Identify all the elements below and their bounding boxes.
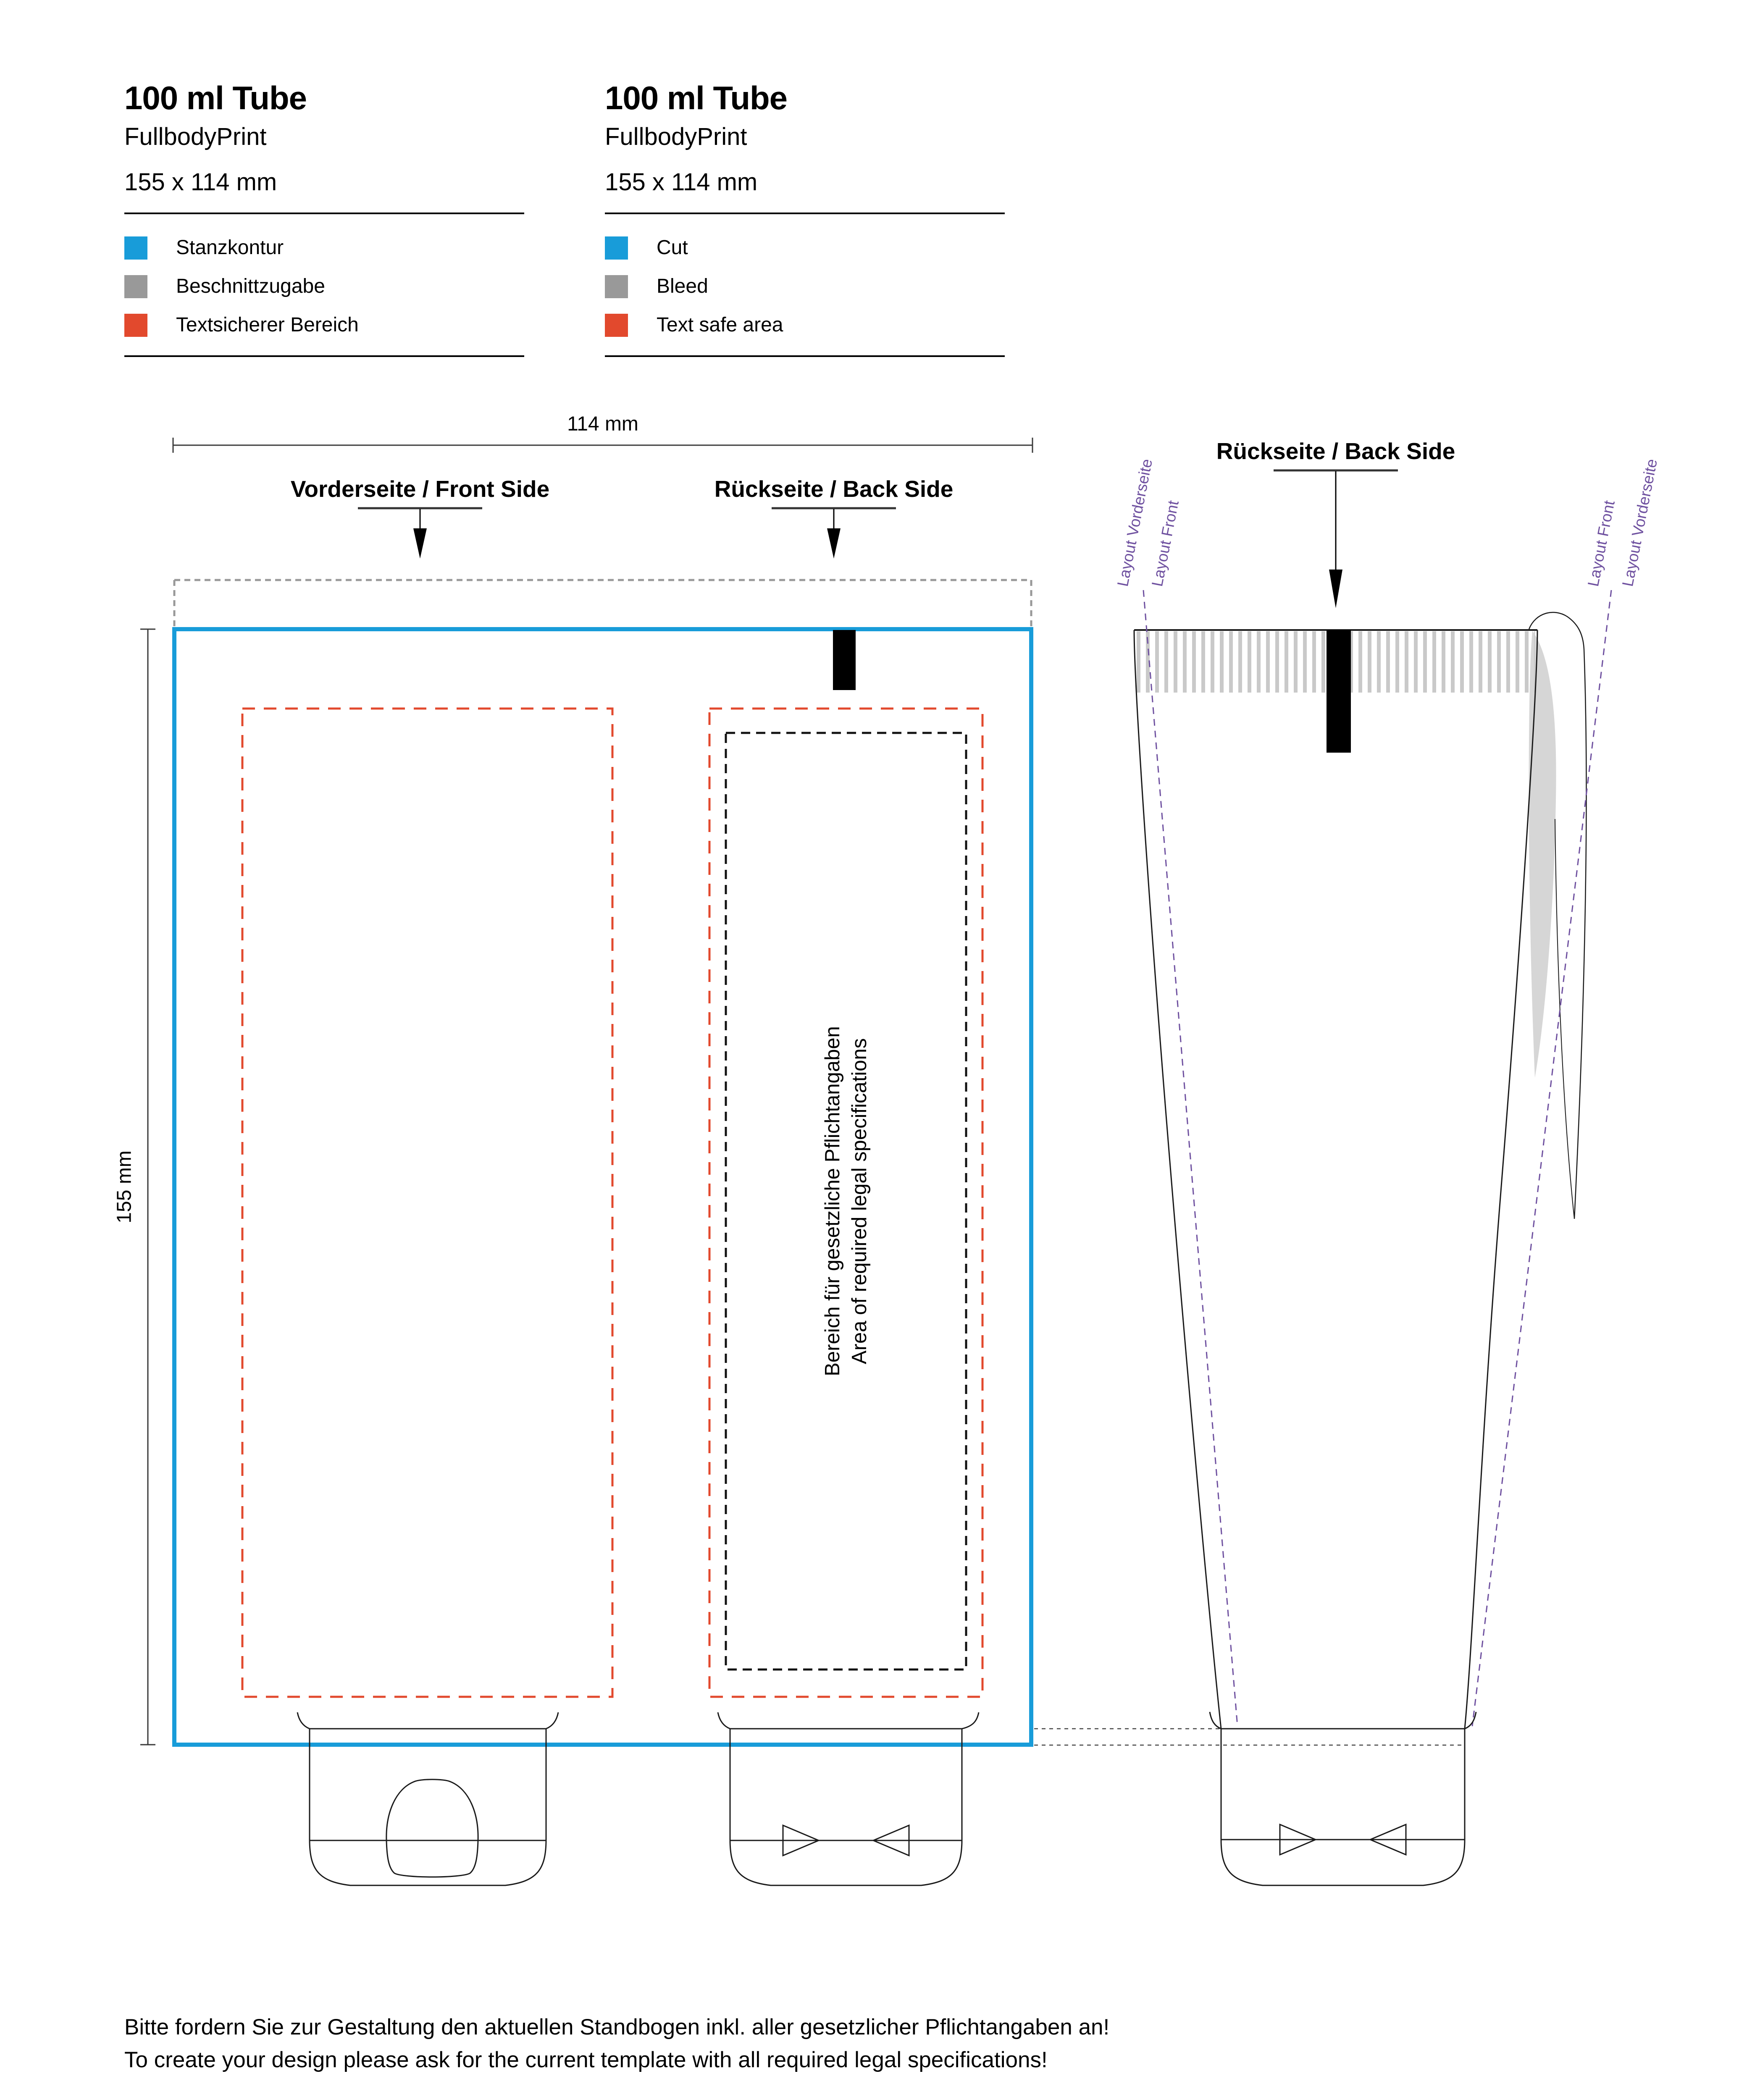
legend-item-bleed: Bleed bbox=[605, 275, 708, 298]
legend-label-bleed: Beschnittzugabe bbox=[176, 275, 325, 298]
tube-back-side-label: Rückseite / Back Side bbox=[1216, 438, 1455, 465]
divider bbox=[124, 355, 524, 357]
legal-area-text-en: Area of required legal specifications bbox=[846, 1026, 873, 1376]
legend-item-cut: Stanzkontur bbox=[124, 236, 284, 260]
cut-contour-rect bbox=[174, 629, 1031, 1745]
legend-item-bleed: Beschnittzugabe bbox=[124, 275, 325, 298]
legend-swatch-cut bbox=[124, 236, 147, 260]
dimension-height bbox=[140, 629, 155, 1745]
divider bbox=[124, 213, 524, 214]
layout-guide-left bbox=[1143, 590, 1237, 1726]
legend-label-cut: Stanzkontur bbox=[176, 236, 284, 260]
spec-header-en: 100 ml Tube FullbodyPrint 155 x 114 mm C… bbox=[605, 79, 1008, 373]
print-type: FullbodyPrint bbox=[605, 123, 747, 151]
legal-area-text: Bereich für gesetzliche Pflichtangaben A… bbox=[819, 1026, 873, 1376]
divider bbox=[605, 355, 1005, 357]
registration-mark-tube bbox=[1327, 630, 1351, 753]
back-side-label: Rückseite / Back Side bbox=[715, 475, 954, 502]
legend-item-safe-area: Textsicherer Bereich bbox=[124, 313, 359, 337]
registration-mark-dieline bbox=[833, 630, 856, 690]
footer-note-en: To create your design please ask for the… bbox=[124, 2047, 1048, 2073]
legend-swatch-bleed bbox=[124, 275, 147, 298]
back-side-arrow bbox=[772, 508, 896, 559]
format-size: 155 x 114 mm bbox=[605, 168, 757, 196]
bleed-outline bbox=[174, 580, 1031, 627]
tube-illustration bbox=[1134, 590, 1611, 1885]
legend-swatch-cut bbox=[605, 236, 628, 260]
footer-note-de: Bitte fordern Sie zur Gestaltung den akt… bbox=[124, 2014, 1109, 2040]
text-safe-area-front bbox=[242, 709, 612, 1697]
tube-back-side-arrow bbox=[1274, 470, 1398, 608]
product-title: 100 ml Tube bbox=[605, 79, 787, 117]
front-side-label: Vorderseite / Front Side bbox=[291, 475, 549, 502]
spec-header-de: 100 ml Tube FullbodyPrint 155 x 114 mm S… bbox=[124, 79, 528, 373]
width-dimension-label: 114 mm bbox=[567, 412, 638, 436]
divider bbox=[605, 213, 1005, 214]
cap-front bbox=[297, 1712, 558, 1885]
dimension-width bbox=[173, 438, 1032, 453]
cap-front-flip-lid bbox=[386, 1780, 478, 1877]
legend-label-safe-area: Textsicherer Bereich bbox=[176, 313, 359, 337]
legend-label-cut: Cut bbox=[657, 236, 688, 260]
height-dimension-label: 155 mm bbox=[113, 1150, 136, 1223]
legend-swatch-bleed bbox=[605, 275, 628, 298]
print-type: FullbodyPrint bbox=[124, 123, 266, 151]
product-title: 100 ml Tube bbox=[124, 79, 307, 117]
tube-cap bbox=[1210, 1712, 1476, 1885]
tube-side-left bbox=[1134, 630, 1221, 1729]
front-side-arrow bbox=[358, 508, 482, 559]
connector-lines bbox=[1034, 1729, 1465, 1745]
legend-swatch-safe-area bbox=[605, 314, 628, 337]
legend-label-safe-area: Text safe area bbox=[657, 313, 783, 337]
format-size: 155 x 114 mm bbox=[124, 168, 277, 196]
cap-back bbox=[718, 1712, 979, 1885]
legal-area-text-de: Bereich für gesetzliche Pflichtangaben bbox=[819, 1026, 846, 1376]
tube-print-template-sheet: 100 ml Tube FullbodyPrint 155 x 114 mm S… bbox=[0, 0, 1739, 2100]
legend-item-cut: Cut bbox=[605, 236, 688, 260]
legend-label-bleed: Bleed bbox=[657, 275, 708, 298]
legend-swatch-safe-area bbox=[124, 314, 147, 337]
tube-side-right bbox=[1465, 630, 1537, 1729]
legend-item-safe-area: Text safe area bbox=[605, 313, 783, 337]
tube-flap-shading bbox=[1529, 631, 1556, 1078]
